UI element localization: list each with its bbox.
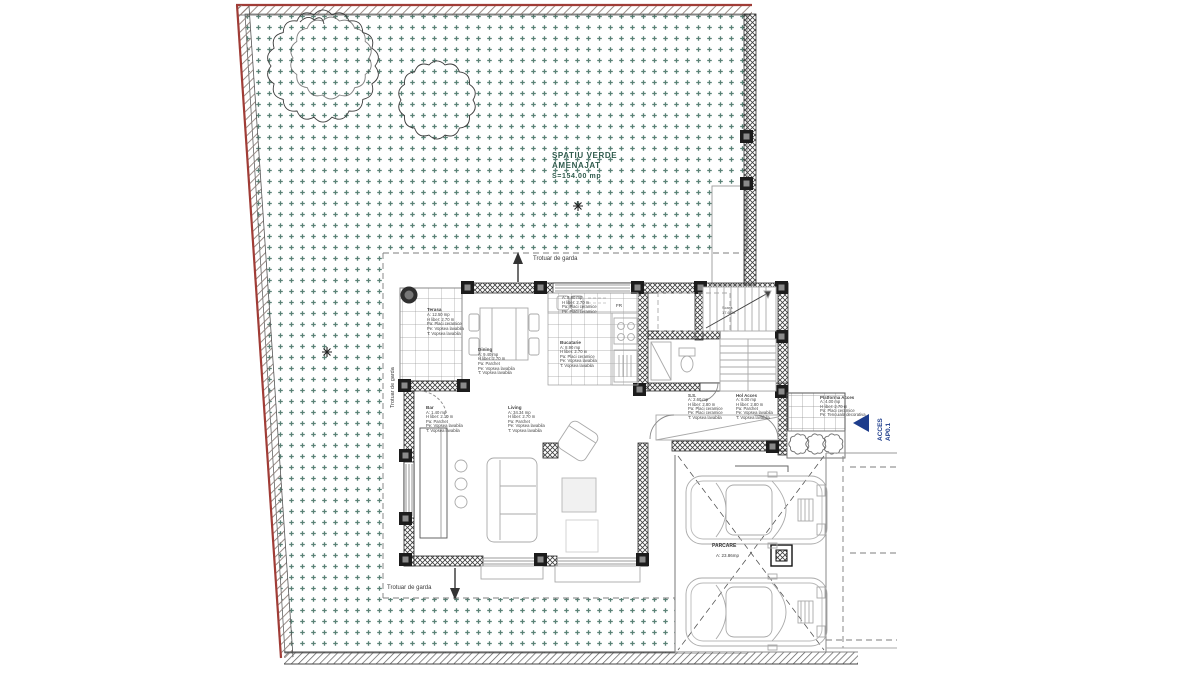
svg-text:17.6/28: 17.6/28 [722,310,736,315]
svg-text:Trotuar de garda: Trotuar de garda [390,366,396,408]
svg-text:Trotuar de garda: Trotuar de garda [533,256,578,262]
floor-plan-drawing: SPATIU VERDE AMENAJAT S=154.00 mp Trotua… [0,0,1200,675]
access-platform [787,393,845,458]
svg-text:Trotuar de garda: Trotuar de garda [387,585,432,591]
svg-text:PARCARE: PARCARE [712,543,737,549]
svg-text:SPATIU VERDE: SPATIU VERDE [552,151,617,160]
svg-text:ACCES: ACCES [877,418,884,441]
svg-text:AP0.1: AP0.1 [885,423,892,441]
svg-text:A: 23.86mp: A: 23.86mp [716,553,740,558]
svg-text:AMENAJAT: AMENAJAT [552,161,601,170]
parking-underlay [675,443,850,653]
entry-walkway [712,186,745,285]
svg-text:FR: FR [616,303,623,308]
access-annotation: ACCES AP0.1 [853,414,892,441]
svg-text:S=154.00 mp: S=154.00 mp [552,173,601,180]
